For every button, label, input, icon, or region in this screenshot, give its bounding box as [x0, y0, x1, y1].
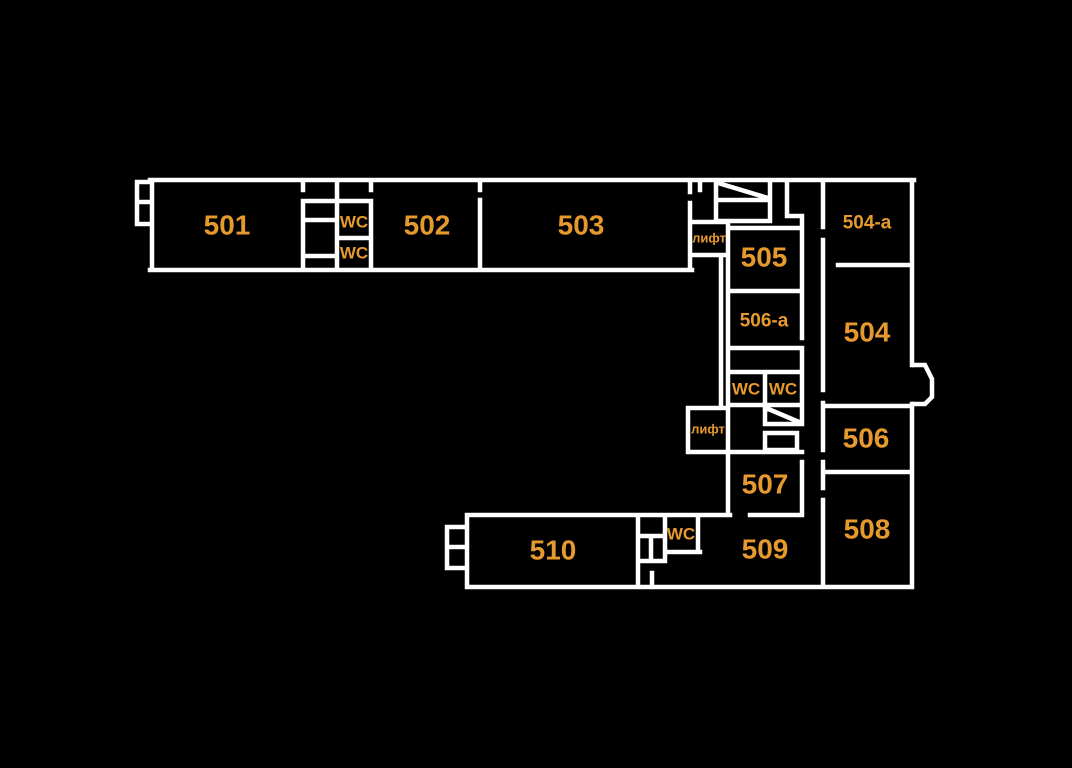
- wc-label: WC: [732, 380, 760, 399]
- room-label-505: 505: [741, 242, 788, 273]
- room-label-507: 507: [742, 469, 789, 500]
- room-label-501: 501: [204, 210, 251, 241]
- room-label-508: 508: [844, 514, 891, 545]
- floor-plan-canvas: 501502503WCWCлифт505504-a504506-aWCWCлиф…: [0, 0, 1072, 768]
- room-label-504-a: 504-a: [843, 213, 892, 234]
- room-label-506-a: 506-a: [740, 311, 789, 332]
- wc-label: WC: [769, 380, 797, 399]
- wc-label: WC: [340, 213, 368, 232]
- room-label-510: 510: [530, 535, 577, 566]
- background: [0, 0, 1072, 768]
- room-label-502: 502: [404, 210, 451, 241]
- wc-label: WC: [667, 525, 695, 544]
- room-label-506: 506: [843, 423, 890, 454]
- room-label-503: 503: [558, 210, 605, 241]
- room-label-509: 509: [742, 534, 789, 565]
- room-label-504: 504: [844, 317, 891, 348]
- wc-label: WC: [340, 244, 368, 263]
- elevator-label: лифт: [692, 231, 726, 246]
- floor-plan: 501502503WCWCлифт505504-a504506-aWCWCлиф…: [0, 0, 1072, 768]
- elevator-label: лифт: [691, 422, 725, 437]
